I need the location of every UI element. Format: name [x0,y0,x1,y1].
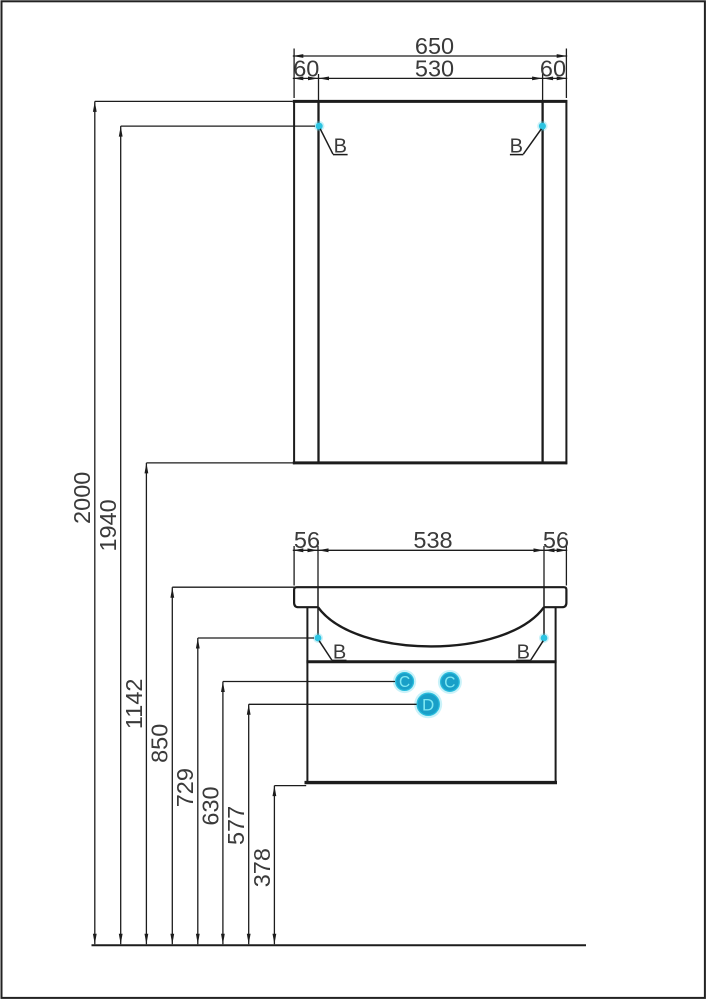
svg-text:B: B [334,136,347,158]
svg-text:1940: 1940 [95,499,121,551]
svg-text:C: C [444,675,455,692]
svg-text:538: 538 [413,527,452,553]
svg-text:B: B [510,136,523,158]
svg-text:850: 850 [147,724,173,763]
svg-text:729: 729 [172,768,198,807]
svg-text:630: 630 [197,786,223,825]
svg-text:60: 60 [293,55,319,81]
svg-text:56: 56 [543,527,569,553]
svg-text:B: B [333,641,346,663]
svg-text:D: D [422,696,434,715]
svg-text:2000: 2000 [69,472,95,524]
svg-text:530: 530 [415,55,454,81]
svg-text:1142: 1142 [121,679,147,730]
svg-text:378: 378 [249,848,275,887]
svg-text:577: 577 [223,806,249,845]
svg-text:B: B [517,641,530,663]
svg-text:60: 60 [540,55,566,81]
svg-text:C: C [399,674,410,691]
svg-text:56: 56 [294,527,320,553]
